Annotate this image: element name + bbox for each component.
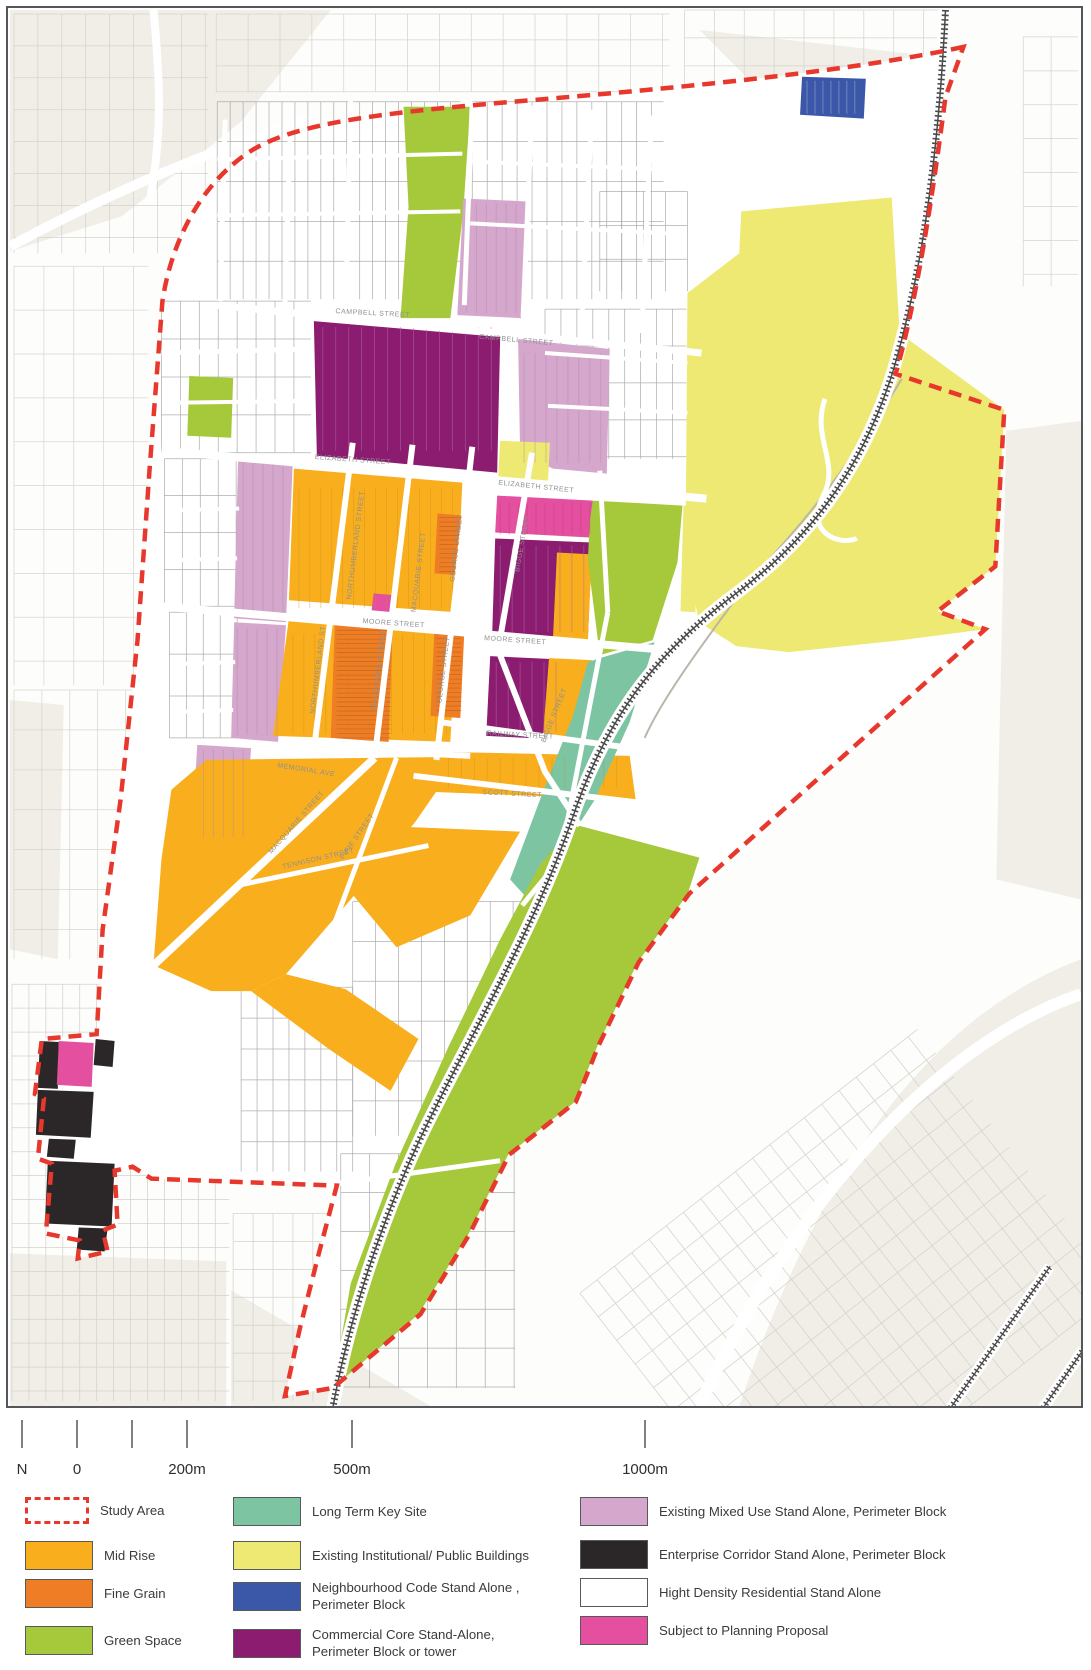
mid-rise-swatch-icon <box>25 1541 93 1570</box>
fine-grain-swatch-icon <box>25 1579 93 1608</box>
zone-enterprise-corridor <box>47 1139 76 1159</box>
legend-item-label: Commercial Core Stand-Alone, Perimeter B… <box>312 1626 495 1660</box>
zone-planning-proposal <box>57 1041 94 1087</box>
legend-item-study-area: Study Area <box>25 1497 165 1524</box>
legend-item-label: Study Area <box>100 1502 165 1519</box>
scale-label: 0 <box>73 1461 81 1478</box>
legend-item-label: Long Term Key Site <box>312 1503 427 1520</box>
legend-item-label: Existing Mixed Use Stand Alone, Perimete… <box>659 1503 946 1520</box>
neighbourhood-code-stand-alone-perimeter-swatch-icon <box>233 1582 301 1611</box>
legend-item-label: Fine Grain <box>104 1585 166 1602</box>
zone-planning-proposal <box>495 496 593 538</box>
long-term-key-site-swatch-icon <box>233 1497 301 1526</box>
commercial-core-stand-alone-perimeter-bl-swatch-icon <box>233 1629 301 1658</box>
legend-item-commercial-core-stand-alone-perimeter-bl: Commercial Core Stand-Alone, Perimeter B… <box>233 1626 495 1660</box>
planning-map-page: CAMPBELL STREETCAMPBELL STREETELIZABETH … <box>0 0 1091 1670</box>
zone-green-space <box>187 376 233 438</box>
parcel-grid <box>1023 37 1078 286</box>
legend-item-green-space: Green Space <box>25 1626 182 1655</box>
zone-mid-rise <box>553 552 592 640</box>
legend-item-label: Subject to Planning Proposal <box>659 1622 828 1639</box>
legend-item-label: Green Space <box>104 1632 182 1649</box>
scale-label: N <box>17 1461 28 1478</box>
study-area-swatch-icon <box>25 1497 89 1524</box>
legend-item-mid-rise: Mid Rise <box>25 1541 155 1570</box>
legend-item-label: Mid Rise <box>104 1547 155 1564</box>
zone-enterprise-corridor <box>45 1161 115 1227</box>
existing-institutional-public-buildings-swatch-icon <box>233 1541 301 1570</box>
legend-item-existing-mixed-use-stand-alone-perimeter: Existing Mixed Use Stand Alone, Perimete… <box>580 1497 946 1526</box>
legend-item-label: Neighbourhood Code Stand Alone , Perimet… <box>312 1579 520 1613</box>
scale-label: 1000m <box>622 1461 668 1478</box>
legend-item-label: Hight Density Residential Stand Alone <box>659 1584 881 1601</box>
hight-density-residential-stand-alone-swatch-icon <box>580 1578 648 1607</box>
legend-item-enterprise-corridor-stand-alone-perimete: Enterprise Corridor Stand Alone, Perimet… <box>580 1540 946 1569</box>
scale-bar: N0200m500m1000m <box>0 1412 1091 1484</box>
scale-label: 500m <box>333 1461 371 1478</box>
legend-item-label: Enterprise Corridor Stand Alone, Perimet… <box>659 1546 946 1563</box>
map-canvas: CAMPBELL STREETCAMPBELL STREETELIZABETH … <box>8 8 1081 1406</box>
legend-item-fine-grain: Fine Grain <box>25 1579 166 1608</box>
green-space-swatch-icon <box>25 1626 93 1655</box>
zone-neighbourhood-code <box>800 77 866 119</box>
legend-item-label: Existing Institutional/ Public Buildings <box>312 1547 529 1564</box>
map-frame: CAMPBELL STREETCAMPBELL STREETELIZABETH … <box>6 6 1083 1408</box>
enterprise-corridor-stand-alone-perimete-swatch-icon <box>580 1540 648 1569</box>
legend-item-subject-to-planning-proposal: Subject to Planning Proposal <box>580 1616 828 1645</box>
legend-item-hight-density-residential-stand-alone: Hight Density Residential Stand Alone <box>580 1578 881 1607</box>
legend-item-neighbourhood-code-stand-alone-perimeter: Neighbourhood Code Stand Alone , Perimet… <box>233 1579 520 1613</box>
zone-institutional <box>685 197 1004 652</box>
zone-enterprise-corridor <box>94 1039 115 1067</box>
legend-item-existing-institutional-public-buildings: Existing Institutional/ Public Buildings <box>233 1541 529 1570</box>
parcel-grid <box>14 266 148 685</box>
legend-item-long-term-key-site: Long Term Key Site <box>233 1497 427 1526</box>
existing-mixed-use-stand-alone-perimeter-swatch-icon <box>580 1497 648 1526</box>
scale-label: 200m <box>168 1461 206 1478</box>
subject-to-planning-proposal-swatch-icon <box>580 1616 648 1645</box>
